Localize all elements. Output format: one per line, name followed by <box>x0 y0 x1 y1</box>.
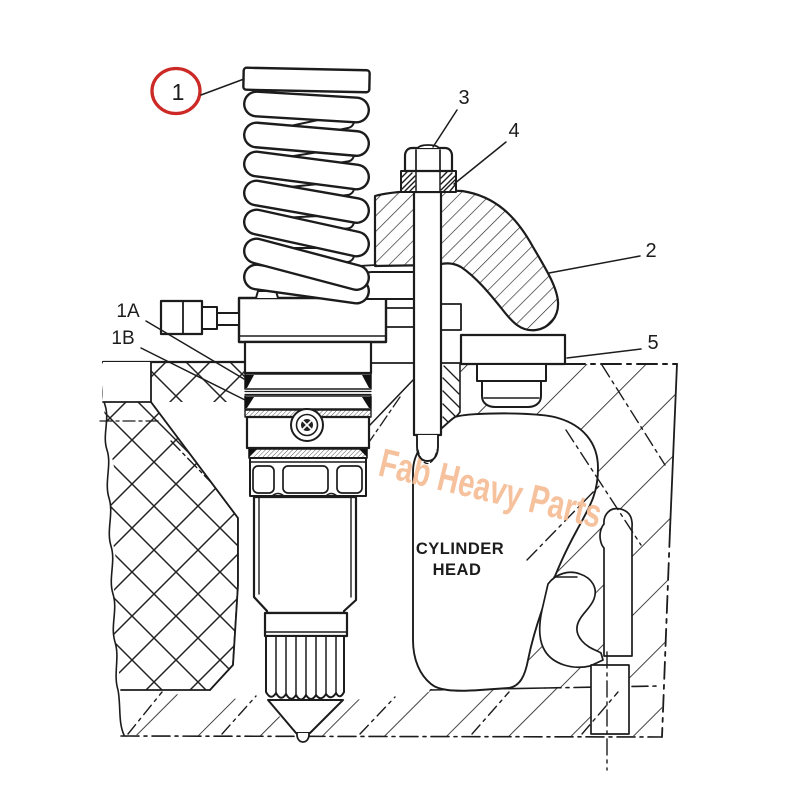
svg-text:CYLINDER: CYLINDER <box>416 540 504 558</box>
svg-text:5: 5 <box>647 332 658 354</box>
svg-text:3: 3 <box>458 87 469 109</box>
svg-text:4: 4 <box>508 120 519 142</box>
svg-text:HEAD: HEAD <box>433 561 482 579</box>
svg-text:1A: 1A <box>116 301 140 322</box>
svg-text:1B: 1B <box>111 328 134 349</box>
svg-text:1: 1 <box>172 79 185 105</box>
svg-text:2: 2 <box>645 240 656 262</box>
